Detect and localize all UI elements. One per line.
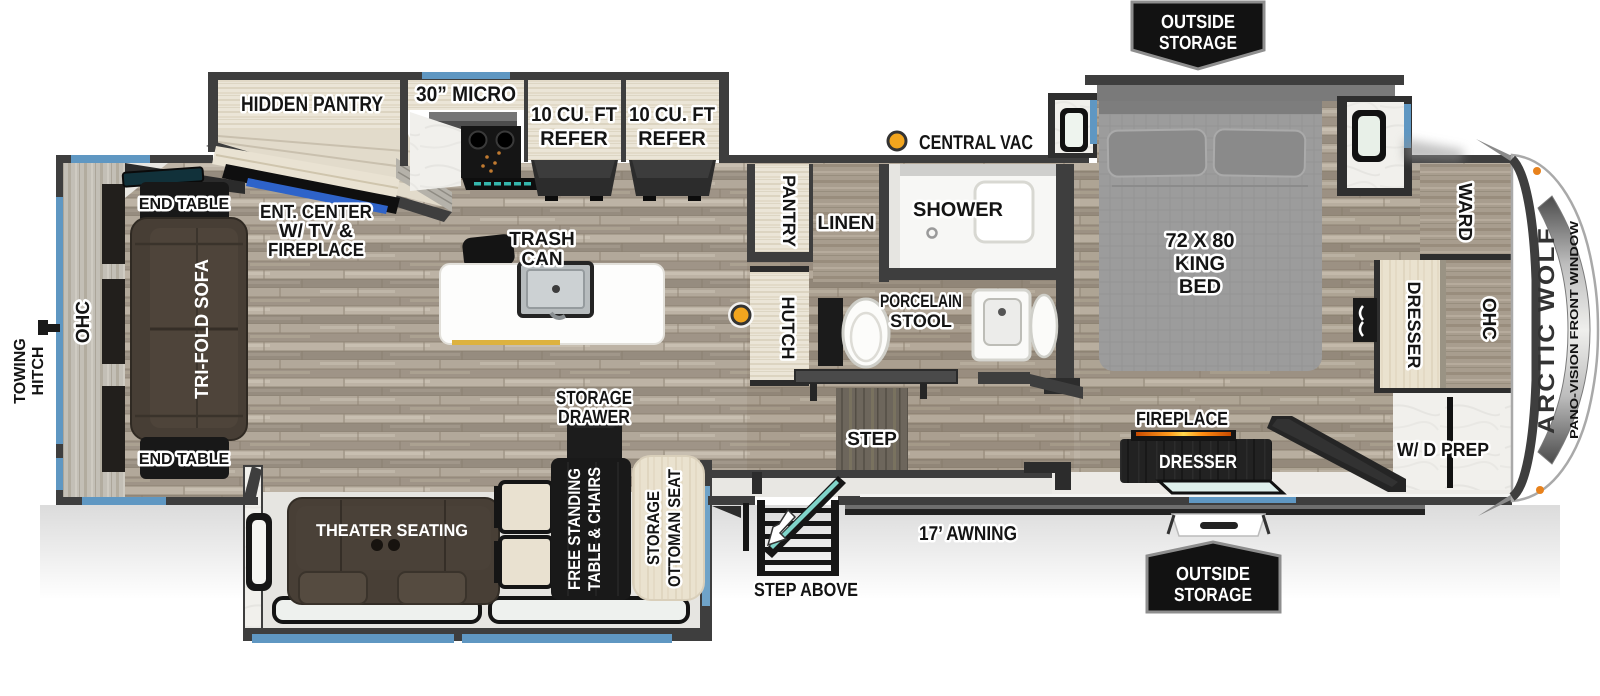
svg-text:DRESSER: DRESSER bbox=[1159, 452, 1237, 473]
svg-text:STEP ABOVE: STEP ABOVE bbox=[754, 580, 858, 601]
svg-text:30” MICRO: 30” MICRO bbox=[416, 83, 516, 106]
svg-text:FIREPLACE: FIREPLACE bbox=[1136, 409, 1228, 430]
svg-text:DRAWER: DRAWER bbox=[558, 407, 630, 428]
svg-text:CAN: CAN bbox=[521, 249, 562, 270]
svg-text:ENT. CENTER: ENT. CENTER bbox=[260, 202, 372, 223]
svg-text:OUTSIDE: OUTSIDE bbox=[1176, 564, 1250, 585]
svg-text:STEP: STEP bbox=[847, 429, 897, 450]
svg-text:OUTSIDE: OUTSIDE bbox=[1161, 12, 1235, 33]
svg-text:REFER: REFER bbox=[540, 128, 608, 150]
svg-text:W/ D PREP: W/ D PREP bbox=[1397, 440, 1489, 461]
svg-text:W/ TV &: W/ TV & bbox=[279, 221, 353, 242]
svg-text:REFER: REFER bbox=[638, 128, 706, 150]
svg-text:THEATER SEATING: THEATER SEATING bbox=[316, 521, 468, 540]
svg-text:STOOL: STOOL bbox=[890, 311, 952, 331]
svg-text:STORAGE: STORAGE bbox=[1174, 585, 1252, 606]
svg-text:17’ AWNING: 17’ AWNING bbox=[919, 523, 1017, 545]
svg-text:TOWING: TOWING bbox=[12, 338, 29, 403]
svg-text:DRESSER: DRESSER bbox=[1404, 281, 1424, 368]
svg-text:HITCH: HITCH bbox=[30, 347, 47, 396]
svg-text:STORAGE: STORAGE bbox=[1159, 33, 1237, 54]
svg-text:TRI-FOLD SOFA: TRI-FOLD SOFA bbox=[192, 259, 213, 399]
svg-text:10 CU. FT: 10 CU. FT bbox=[629, 104, 715, 126]
svg-text:OHC: OHC bbox=[1478, 298, 1499, 341]
svg-text:TABLE & CHAIRS: TABLE & CHAIRS bbox=[585, 467, 604, 591]
svg-text:72 X 80: 72 X 80 bbox=[1166, 230, 1235, 252]
svg-text:LINEN: LINEN bbox=[818, 213, 875, 234]
svg-text:BED: BED bbox=[1179, 276, 1221, 298]
svg-text:OTTOMAN SEAT: OTTOMAN SEAT bbox=[665, 468, 684, 587]
svg-text:STORAGE: STORAGE bbox=[556, 388, 632, 409]
svg-text:PANO-VISION FRONT WINDOW: PANO-VISION FRONT WINDOW bbox=[1569, 221, 1581, 439]
svg-text:ARCTIC WOLF: ARCTIC WOLF bbox=[1533, 226, 1559, 434]
svg-text:PANTRY: PANTRY bbox=[779, 175, 799, 247]
svg-text:OHC: OHC bbox=[73, 301, 94, 344]
svg-text:HUTCH: HUTCH bbox=[778, 297, 798, 360]
svg-text:HIDDEN PANTRY: HIDDEN PANTRY bbox=[241, 93, 383, 116]
svg-text:PORCELAIN: PORCELAIN bbox=[880, 291, 962, 311]
svg-text:STORAGE: STORAGE bbox=[644, 491, 663, 565]
svg-text:FREE STANDING: FREE STANDING bbox=[565, 468, 584, 590]
svg-text:CENTRAL VAC: CENTRAL VAC bbox=[919, 132, 1033, 154]
svg-text:KING: KING bbox=[1175, 253, 1225, 275]
svg-text:WARD: WARD bbox=[1454, 183, 1475, 241]
svg-text:TRASH: TRASH bbox=[509, 229, 574, 250]
svg-text:SHOWER: SHOWER bbox=[913, 199, 1004, 221]
svg-text:FIREPLACE: FIREPLACE bbox=[268, 240, 364, 261]
svg-text:10 CU. FT: 10 CU. FT bbox=[531, 104, 617, 126]
svg-text:END TABLE: END TABLE bbox=[139, 451, 230, 468]
svg-text:END TABLE: END TABLE bbox=[139, 196, 230, 213]
